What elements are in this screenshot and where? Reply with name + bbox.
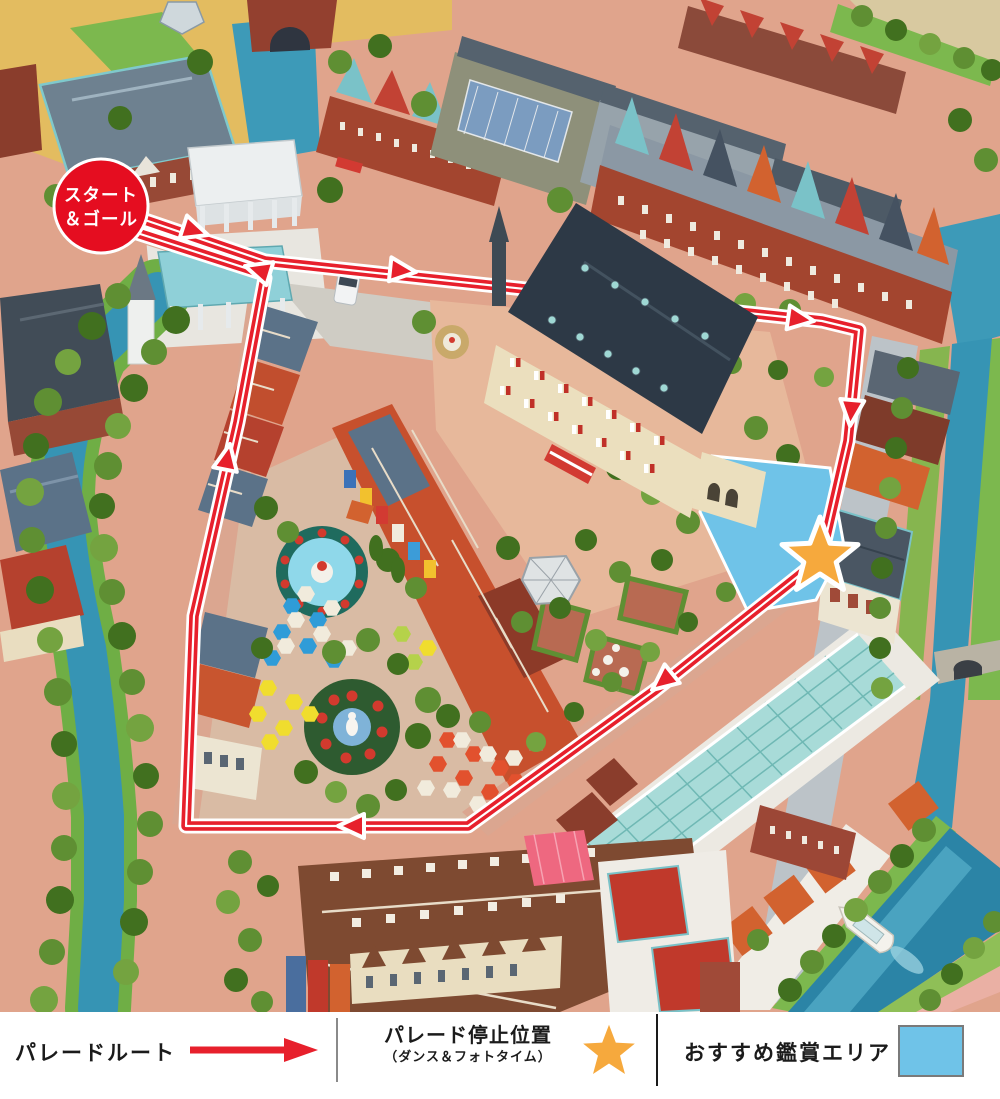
route-arrow-icon [188, 1037, 322, 1063]
legend-stop-label: パレード停止位置 [360, 1024, 576, 1049]
park-map-illustration: スタート ＆ゴール [0, 0, 1000, 1012]
legend-stop-sublabel: （ダンス＆フォトタイム） [360, 1049, 576, 1065]
park-map: スタート ＆ゴール [0, 0, 1000, 1012]
badge-line2: ＆ゴール [64, 209, 138, 229]
legend-divider-2 [656, 1014, 658, 1086]
parade-stop-star-legend-icon [580, 1020, 638, 1078]
legend-divider-1 [336, 1018, 338, 1082]
start-goal-badge: スタート ＆ゴール [54, 159, 148, 253]
viewing-area-swatch [898, 1025, 964, 1077]
legend-stop-block: パレード停止位置 （ダンス＆フォトタイム） [360, 1024, 576, 1065]
map-legend: パレードルート パレード停止位置 （ダンス＆フォトタイム） おすすめ鑑賞エリア [0, 1012, 1000, 1099]
svg-text:スタート: スタート [64, 185, 138, 205]
legend-viewing-label: おすすめ鑑賞エリア [684, 1037, 891, 1067]
svg-text:＆ゴール: ＆ゴール [64, 209, 138, 229]
parade-map-page: スタート ＆ゴール パレードルート パレード停止位置 （ダンス＆フォトタイム） … [0, 0, 1000, 1099]
badge-line1: スタート [64, 185, 138, 205]
legend-route-label: パレードルート [15, 1037, 176, 1067]
